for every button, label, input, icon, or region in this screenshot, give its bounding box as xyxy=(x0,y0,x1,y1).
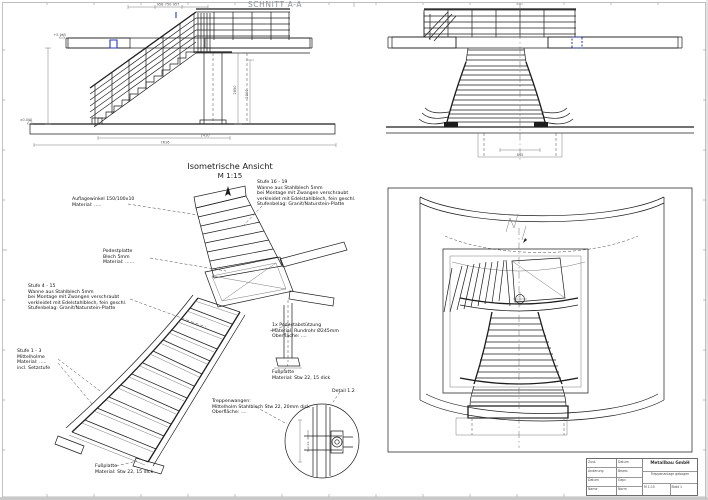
section-title: SCHNITT A-A xyxy=(200,0,350,9)
annotation-stufe-4-15: Stufe 4 - 15 Wanne aus Stahlblech 5mm be… xyxy=(28,284,128,312)
annotation-stufe-16-19: Stufe 16 - 19 Wanne aus Stahlblech 5mm b… xyxy=(257,180,357,208)
section-right-dim-2: 2100 xyxy=(245,89,249,99)
tb-field: Zust. xyxy=(587,459,616,468)
section-bottom-dim-2: 7616 xyxy=(160,141,170,145)
plan-view xyxy=(388,188,692,452)
title-block-bottom-row: M 1:15 Blatt 1 xyxy=(643,484,697,495)
title-block-company: Metallbau GmbH xyxy=(643,459,697,472)
tb-field: Norm xyxy=(617,487,642,495)
iso-view-title: Isometrische Ansicht xyxy=(148,161,312,171)
tb-field: Bearb. xyxy=(617,468,642,477)
tb-field: Datum xyxy=(617,459,642,468)
section-view: 958 750 957 2850 2100 1410 7616 +5.145 ±… xyxy=(20,3,336,148)
annotation-fussplatte-stuetze: Fußplatte Material: Stw 22, 15 dick xyxy=(272,370,352,381)
section-level-bottom: ±0.000 xyxy=(20,118,33,122)
title-block-col-approval: Datum Bearb. Gepr. Norm xyxy=(617,459,643,495)
annotation-treppenwangen: Treppenwangen: Mittelholm Stahlblech Stw… xyxy=(212,399,322,416)
title-block-col-revision: Zust. Änderung Datum Name xyxy=(587,459,617,495)
tb-field: Gepr. xyxy=(617,478,642,487)
drawing-sheet: 958 750 957 2850 2100 1410 7616 +5.145 ±… xyxy=(0,0,708,500)
section-level-top: +5.145 xyxy=(53,33,66,37)
annotation-fussplatte-antritt: Fußplatte Material: Stw 22, 15 dick xyxy=(95,464,175,475)
iso-view-scale: M 1:15 xyxy=(148,171,312,180)
front-bottom-dim: 845 xyxy=(517,153,524,157)
section-bottom-dim-1: 1410 xyxy=(200,134,210,138)
section-right-dim-1: 2850 xyxy=(233,85,237,95)
title-block-scale: M 1:15 xyxy=(643,484,671,495)
front-view: 845 xyxy=(386,3,694,160)
detail-note: Stw 22, 20mm xyxy=(306,430,310,452)
title-block-project: Treppenanlage gebogen xyxy=(643,472,697,485)
title-block-sheet: Blatt 1 xyxy=(671,484,698,495)
annotation-auflagewinkel: Auflagewinkel 150/100x10 Material: ..... xyxy=(72,197,164,208)
tb-field: Änderung xyxy=(587,468,616,477)
annotation-stufe-1-3: Stufe 1 - 3 Mittelholme Material: ..... … xyxy=(17,349,87,371)
detail-label: Detail 1.2 xyxy=(332,389,372,395)
section-top-dim: 958 750 957 xyxy=(157,3,180,7)
title-block-col-main: Metallbau GmbH Treppenanlage gebogen M 1… xyxy=(643,459,697,495)
annotation-podestplatte: Podestplatte Blech 5mm Material: ...... xyxy=(103,249,173,266)
tb-field: Datum xyxy=(587,478,616,487)
title-block: Zust. Änderung Datum Name Datum Bearb. G… xyxy=(586,458,698,496)
annotation-podestabstuetzung: 1x Podestabstützung Material: Rundrohr Ø… xyxy=(272,323,362,340)
tb-field: Name xyxy=(587,487,616,495)
